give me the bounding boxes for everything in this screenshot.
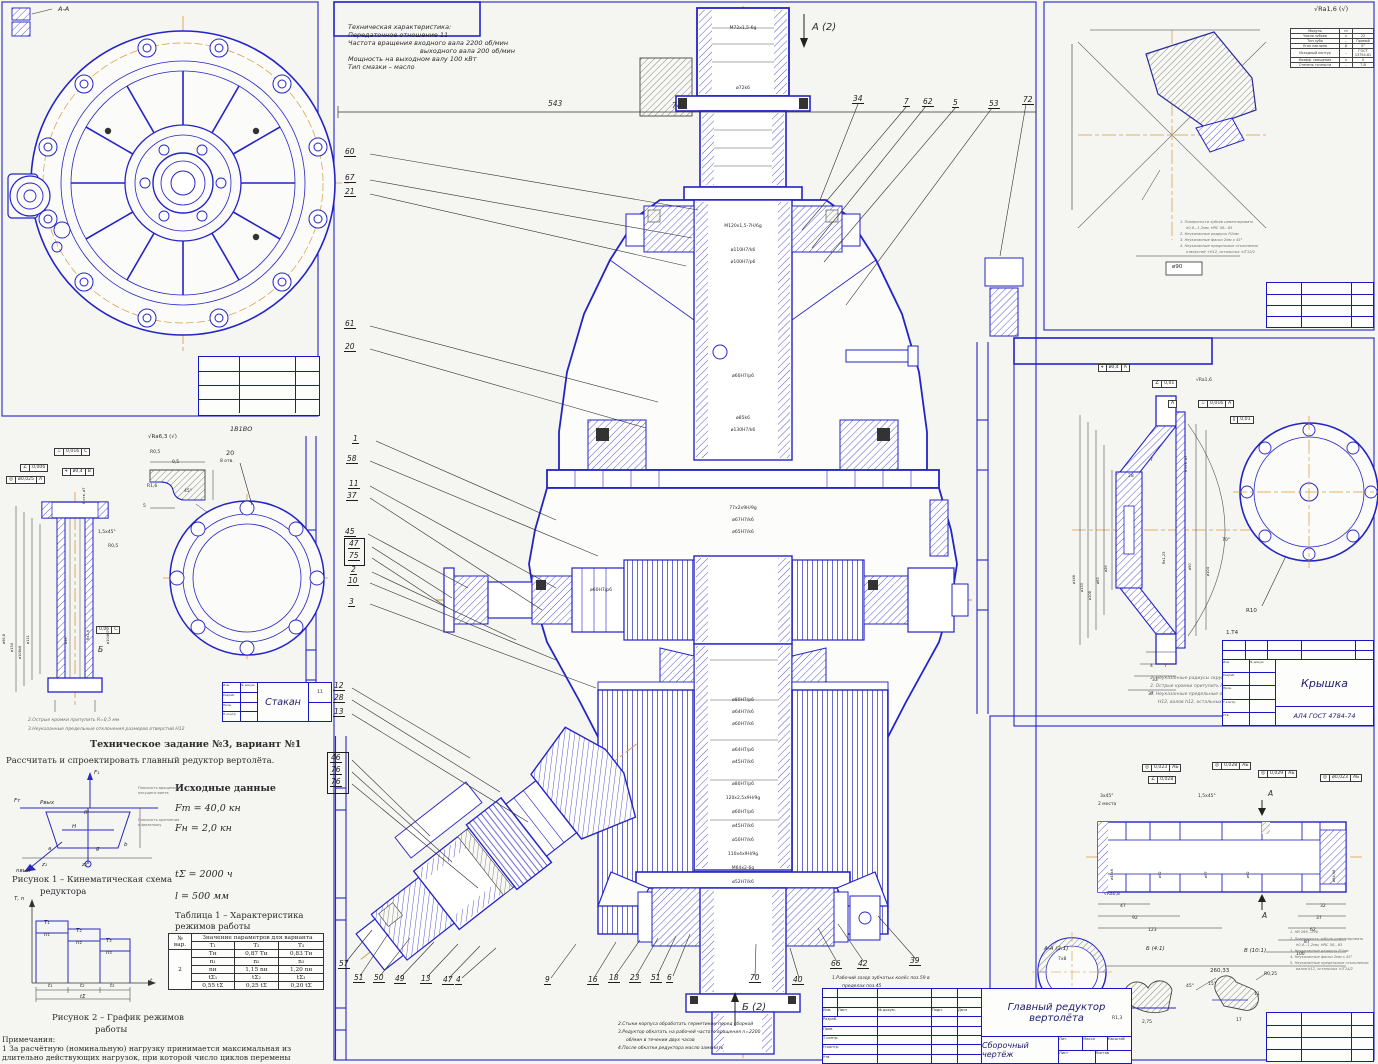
dim-label: 7 bbox=[1164, 664, 1167, 669]
dim-label: 28 bbox=[1128, 474, 1134, 479]
gdt-frame: ◎0,023АБ bbox=[1142, 764, 1181, 772]
callout-number: 61 bbox=[344, 320, 356, 329]
callout-number: 58 bbox=[346, 455, 358, 464]
section-label-bottom: Б (2) bbox=[742, 1002, 766, 1014]
dim-label: ø148 bbox=[1072, 575, 1076, 584]
assembly-note: 3.Редуктор обкатать на рабочей частоте в… bbox=[618, 1030, 761, 1035]
view-label: Б (4:1) bbox=[1146, 946, 1165, 952]
callout-number: 39 bbox=[909, 957, 921, 966]
dim-label: ø63 bbox=[1096, 577, 1100, 584]
gdt-frame: ∠0,01 bbox=[1152, 380, 1177, 388]
drawing-note: 2. Поверхность зубьев цементировать bbox=[1290, 937, 1363, 941]
dim-label: R10 bbox=[1246, 608, 1257, 614]
callout-number: 21 bbox=[344, 188, 356, 197]
shaft-title-block bbox=[1266, 1012, 1374, 1062]
callout-number: 47 bbox=[442, 976, 454, 985]
fit-label: ø65Н7/k6 bbox=[732, 530, 754, 535]
dim-label: ø104Н7 bbox=[106, 630, 110, 644]
fit-label: ø45Н7/k6 bbox=[732, 824, 754, 829]
drawing-note: 2.Острые кромки притупить R=0,5 мм bbox=[28, 718, 119, 723]
fig2-caption: Рисунок 2 – График режимов bbox=[52, 1014, 184, 1024]
dim-label: 7х8 bbox=[1058, 957, 1066, 962]
part-title: Стакан bbox=[258, 683, 308, 721]
gdt-frame: ◎ø0,025А bbox=[6, 476, 45, 484]
callout-number: 23 bbox=[629, 974, 641, 983]
drawing-note: 3.Неуказанные предельные отклонения разм… bbox=[28, 727, 184, 732]
table1-caption: режимов работы bbox=[175, 923, 250, 933]
part-title: Крышка bbox=[1276, 660, 1373, 706]
view-label: В (10:1) bbox=[1244, 948, 1266, 954]
dim-label: ø108 bbox=[1088, 591, 1092, 600]
gear-title-block bbox=[1266, 282, 1374, 328]
fig2-label: Т₂ bbox=[76, 928, 82, 934]
callout-number: 37 bbox=[346, 492, 358, 501]
callout-number: 9 bbox=[544, 976, 551, 985]
tb-col: Дата bbox=[957, 1008, 981, 1016]
section-mark: А bbox=[1262, 912, 1267, 921]
fit-label: ø45Н7/k6 bbox=[732, 760, 754, 765]
dim-label: 11 bbox=[1254, 992, 1260, 997]
fit-label: ø80Н7/р6 bbox=[732, 782, 754, 787]
fit-label: ø72k6 bbox=[736, 86, 750, 91]
assembly-top-view bbox=[8, 8, 352, 352]
dim-label: 37 bbox=[1316, 916, 1322, 921]
surface-finish-mark: √Ra0,8 bbox=[1104, 892, 1120, 897]
callout-number: 72 bbox=[1022, 96, 1034, 105]
callout-number: 51 bbox=[353, 974, 365, 983]
drawing-note: 4. Неуказанные фаски 2мм х 45° bbox=[1290, 955, 1352, 959]
callout-number: 10 bbox=[347, 577, 359, 586]
drawing-title: Главный редуктор вертолёта bbox=[982, 989, 1131, 1036]
callout-number: 47 bbox=[348, 540, 360, 549]
callout-number: 75 bbox=[348, 552, 360, 561]
assembly-note: 1.Рабочий зазор зубчатых колёс поз.59 в bbox=[832, 976, 930, 981]
fig1-label: Fт bbox=[14, 798, 20, 804]
fig1-annotation: Плоскость вращения bbox=[138, 786, 178, 790]
dim-label: 2,75 bbox=[1142, 1020, 1152, 1025]
section-label: А-А (2:1) bbox=[1044, 946, 1068, 952]
corner-view-label: А-А bbox=[58, 6, 69, 13]
dim-label: 17 bbox=[1236, 1018, 1242, 1023]
fit-label: М64х2-6g bbox=[732, 866, 754, 871]
fig2-label: t₃ bbox=[110, 983, 114, 989]
note-marker: 1.Т4 bbox=[1226, 630, 1238, 636]
main-assembly-section bbox=[315, 6, 1036, 1058]
tb-row: Разраб. bbox=[823, 1017, 877, 1025]
assembly-note: 2.Стыки корпуса обработать герметиком пе… bbox=[618, 1022, 753, 1027]
dim-label: 45° bbox=[1186, 984, 1194, 989]
fig1-annotation: Плоскость крепления bbox=[138, 818, 179, 822]
fig1-label: III bbox=[84, 810, 89, 816]
fit-label: ø60Н7/р6 bbox=[732, 810, 754, 815]
dim-label: 7 bbox=[1150, 458, 1153, 463]
dim-label: R1,6 bbox=[147, 484, 157, 489]
dim-label: 5 bbox=[143, 504, 146, 509]
dim-label: 260,33 bbox=[1210, 968, 1229, 974]
dim-label: 74 bbox=[672, 102, 682, 111]
task-param: Fн = 2,0 кн bbox=[175, 824, 232, 835]
duty-table: № вар. Значение параметров для варианта … bbox=[168, 933, 324, 990]
gdt-frame: ∥0,01 bbox=[1230, 416, 1254, 424]
fig2-label: Т, n bbox=[14, 896, 24, 902]
fit-label: ø85k6 bbox=[736, 416, 750, 421]
fit-label: ø130Н7/k6 bbox=[731, 428, 756, 433]
fig1-label: F₁ bbox=[94, 770, 99, 776]
callout-number: 76 bbox=[330, 766, 342, 775]
callout-number: 5 bbox=[952, 99, 959, 108]
fig1-label: b bbox=[124, 842, 128, 848]
doc-type: Сборочный чертёж bbox=[982, 1037, 1058, 1063]
sheet-number: 11 bbox=[309, 683, 331, 702]
cover-title-block: Изм.№ докум. Разраб. Пров. Т.контр. Утв.… bbox=[1222, 640, 1374, 726]
callout-number: 66 bbox=[830, 960, 842, 969]
note-line: длительно действующих нагрузок, при кото… bbox=[2, 1054, 290, 1063]
tb-row: Н.контр. bbox=[823, 1045, 877, 1053]
dim-label: 1,5х45° bbox=[1198, 794, 1216, 799]
fit-label: ø60Н7/р6 bbox=[732, 374, 754, 379]
holes-note: 8 отв. ø7 bbox=[1184, 456, 1188, 473]
fit-label: ø60Н7/р6 bbox=[590, 588, 612, 593]
dim-label: R0,5 bbox=[150, 450, 160, 455]
callout-number: 1 bbox=[352, 435, 359, 444]
dim-label: 8 отв. bbox=[220, 459, 234, 464]
dim-label: 20 bbox=[226, 450, 234, 457]
gdt-frame: ∠0,028 bbox=[1148, 776, 1176, 784]
fit-label: 120х2,5х9Н/9g bbox=[726, 796, 761, 801]
callout-number: 4 bbox=[455, 976, 462, 985]
callout-number: 40 bbox=[792, 976, 804, 985]
dim-label: 45° bbox=[184, 489, 192, 494]
dim-label: 15° bbox=[1208, 982, 1216, 987]
gdt-frame: ⌖ø0,4В bbox=[62, 468, 94, 476]
drawing-note: 4. Неуказанные предельные отклонения bbox=[1180, 244, 1258, 248]
fig2-label: Т₁ bbox=[44, 920, 50, 926]
dim-label: R0,5 bbox=[108, 544, 118, 549]
fig2-label: n₃ bbox=[106, 950, 112, 956]
dim-label: ø45k6 bbox=[1110, 869, 1114, 880]
fit-label: ø80Н7/р6 bbox=[732, 698, 754, 703]
section-mark: А bbox=[1268, 790, 1273, 799]
callout-number: 16 bbox=[587, 976, 599, 985]
dim-label: 47 bbox=[1120, 904, 1126, 909]
shaft-detail-view bbox=[1032, 800, 1362, 1013]
fit-label: ø64Н7/k6 bbox=[732, 710, 754, 715]
datum-frame: А bbox=[1168, 400, 1177, 408]
dim-label: R0,25 bbox=[1264, 972, 1277, 977]
fig2-label: n₂ bbox=[76, 940, 82, 946]
callout-number: 3 bbox=[348, 598, 355, 607]
dim-label: 123 bbox=[1148, 928, 1157, 933]
dim-label: ø62 bbox=[1246, 871, 1250, 878]
gdt-frame: ∠0,006 bbox=[20, 464, 48, 472]
surface-finish-mark: √Ra1,6 bbox=[1196, 378, 1212, 383]
fig2-label: Т₃ bbox=[106, 938, 112, 944]
dim-label: ø108k6 bbox=[18, 646, 22, 659]
assembly-note: об/мин в течении двух часов bbox=[626, 1038, 695, 1043]
task-data-heading: Исходные данные bbox=[175, 784, 276, 795]
tb-col: Лист bbox=[837, 1008, 877, 1016]
fit-label: ø52Н7/k6 bbox=[732, 880, 754, 885]
blueprint-canvas: А-А Техническая характеристика: Передато… bbox=[0, 0, 1378, 1064]
dim-label: ø52 bbox=[1158, 871, 1162, 878]
task-heading: Техническое задание №3, вариант №1 bbox=[90, 740, 301, 751]
callout-number: 67 bbox=[344, 174, 356, 183]
callout-number: 34 bbox=[852, 95, 864, 104]
fit-label: ø60Н7/k6 bbox=[732, 722, 754, 727]
fig2-label: n₁ bbox=[44, 932, 50, 938]
callout-number: 46 bbox=[330, 754, 342, 763]
stakan-title-block: Изм.№ докум. Разраб. Пров. Н.контр. Стак… bbox=[222, 682, 332, 722]
drawing-note: 3. Неуказанные радиусы R1мм bbox=[1290, 949, 1349, 953]
gdt-frame: ◎ø0,023АБ bbox=[1320, 774, 1362, 782]
surface-finish-mark: √Ra6,3 (√) bbox=[148, 434, 177, 440]
gdt-frame: ⊥0,016А bbox=[1198, 400, 1234, 408]
fig2-label: tΣ bbox=[80, 994, 86, 1000]
dim-label: Ra1,6 bbox=[86, 630, 90, 640]
fig1-label: z₁ bbox=[42, 862, 47, 868]
fig1-label: g bbox=[96, 846, 100, 852]
task-param: l = 500 мм bbox=[175, 892, 229, 903]
callout-number: 76 bbox=[330, 778, 342, 787]
dim-label: ø90 bbox=[1172, 264, 1182, 270]
fit-label: 110х4х9Н/9g bbox=[728, 852, 758, 857]
callout-number: 57 bbox=[338, 960, 350, 969]
tb-sheets: Листов bbox=[1095, 1051, 1132, 1064]
callout-number: 18 bbox=[608, 974, 620, 983]
fit-label: М120х1,5-7Н/6g bbox=[724, 224, 761, 229]
callout-number: 62 bbox=[922, 98, 934, 107]
dim-label: 2 места bbox=[1098, 802, 1116, 807]
dim-label: ø90 bbox=[1188, 563, 1192, 570]
dim-label: 4 bbox=[1150, 664, 1153, 669]
tb-sheet: Лист bbox=[1059, 1051, 1095, 1064]
view-label: 1В1ВО bbox=[230, 426, 252, 433]
fit-label: ø100Н7/р6 bbox=[731, 260, 756, 265]
fig2-label: t bbox=[150, 978, 152, 984]
drawing-note: 1. НВ 266...290 bbox=[1290, 930, 1318, 934]
drawing-note: 3. Неуказанные фаски 2мм х 45° bbox=[1180, 238, 1242, 242]
fig1-label: Pвых bbox=[40, 800, 54, 806]
callout-number: 42 bbox=[857, 960, 869, 969]
title-block-fragment bbox=[198, 356, 320, 416]
dim-label: R1,3 bbox=[1112, 1016, 1122, 1021]
task-param: Fт = 40,0 кн bbox=[175, 804, 241, 815]
callout-number: 28 bbox=[333, 694, 345, 703]
fig1-annotation: несущего винта bbox=[138, 791, 169, 795]
fit-label: ø67Н7/k6 bbox=[732, 518, 754, 523]
dim-label: 1,5х45° bbox=[98, 530, 116, 535]
fit-label: ø110Н7/k6 bbox=[731, 248, 756, 253]
dim-label: ø134 bbox=[10, 643, 14, 652]
tb-mass: Масса bbox=[1082, 1037, 1106, 1050]
dim-label: ø84,96 bbox=[1332, 870, 1336, 883]
drawing-note: 5. Неуказанные предельные отклонения: bbox=[1290, 961, 1369, 965]
fig2-label: t₂ bbox=[80, 983, 84, 989]
callout-number: 20 bbox=[344, 343, 356, 352]
holes-note: 8 отв. ø7 bbox=[82, 488, 86, 505]
callout-number: 49 bbox=[394, 975, 406, 984]
dim-label: Ra1,25 bbox=[1162, 552, 1166, 565]
tb-col: Изм. bbox=[823, 1008, 837, 1016]
line-art bbox=[0, 0, 1378, 1064]
callout-number: 60 bbox=[344, 148, 356, 157]
callout-number: 70 bbox=[749, 974, 761, 983]
fig1-label: H bbox=[72, 824, 76, 830]
tb-col: № докум. bbox=[877, 1008, 931, 1016]
table1-caption: Таблица 1 – Характеристика bbox=[175, 912, 304, 922]
gdt-frame: ⌖ø0,4А bbox=[1098, 364, 1130, 372]
dim-label: ø96,8 bbox=[2, 634, 6, 644]
gdt-frame: ◎0,028АБ bbox=[1212, 762, 1251, 770]
tb-row: Пров. bbox=[823, 1027, 877, 1035]
gdt-frame: ◎0,029АБ bbox=[1258, 770, 1297, 778]
task-param: tΣ = 2000 ч bbox=[175, 870, 233, 881]
dim-label: 3х45° bbox=[1100, 794, 1114, 799]
dim-label: ø104 bbox=[1206, 567, 1210, 576]
surface-finish-mark: √Ra1,6 (√) bbox=[1314, 6, 1348, 13]
task-body: Рассчитать и спроектировать главный реду… bbox=[6, 757, 274, 767]
dim-label: 32 bbox=[1320, 904, 1326, 909]
fig2-label: t₁ bbox=[48, 983, 52, 989]
tb-row: Утв. bbox=[823, 1055, 877, 1063]
dim-label: ø26 bbox=[1104, 565, 1108, 572]
main-title-block: Изм. Лист № докум. Подп. Дата Разраб. Пр… bbox=[822, 988, 1132, 1064]
tb-col: Подп. bbox=[931, 1008, 957, 1016]
fig1-caption: редуктора bbox=[40, 888, 86, 898]
callout-number: 13 bbox=[333, 708, 345, 717]
dim-label: ø133 bbox=[1080, 583, 1084, 592]
dim-label: 0,5 bbox=[172, 460, 179, 465]
section-label-top: А (2) bbox=[812, 22, 836, 34]
drawing-note: отверстий +Н12, остальных ±IT12/2 bbox=[1186, 250, 1255, 254]
fit-label: ø50Н7/k6 bbox=[732, 838, 754, 843]
assembly-note: 4.После обкатки редуктора масло заменить bbox=[618, 1046, 723, 1051]
drawing-note: h0,8...1,2мм, HRC 58...63 bbox=[1296, 943, 1342, 947]
material-spec: АЛ4 ГОСТ 4784-74 bbox=[1276, 706, 1373, 725]
tech-spec-line: Тип смазки – масло bbox=[348, 64, 415, 71]
callout-number: 45 bbox=[344, 528, 356, 537]
drawing-note: 2. Неуказанные радиусы R1мм bbox=[1180, 232, 1239, 236]
dim-label: 92 bbox=[1132, 916, 1138, 921]
callout-number: 53 bbox=[988, 100, 1000, 109]
tb-scale: Масштаб bbox=[1107, 1037, 1131, 1050]
cup-section-view bbox=[16, 492, 108, 712]
callout-number: 7 bbox=[903, 98, 910, 107]
drawing-note: 1. Поверхности зубьев цементировать bbox=[1180, 220, 1254, 224]
fig1-caption: Рисунок 1 – Кинематическая схема bbox=[12, 876, 172, 886]
tb-row: Т.контр. bbox=[823, 1036, 877, 1044]
drawing-note: h0,8...1,2мм, HRC 58...63 bbox=[1186, 226, 1232, 230]
gdt-frame: ⊥0,016С bbox=[54, 448, 90, 456]
callout-number: 2 bbox=[350, 566, 357, 575]
callout-number: 51 bbox=[650, 974, 662, 983]
fit-label: 77х2х9Н/9g bbox=[729, 506, 756, 511]
fig2-caption: работы bbox=[95, 1026, 127, 1036]
tb-lit: Лит. bbox=[1059, 1037, 1082, 1050]
gear-parameter-table: Модульm Число зубьевz22 Тип зуба–Прямой … bbox=[1290, 28, 1374, 68]
dim-label: ø98 bbox=[64, 637, 68, 644]
dim-label: 543 bbox=[548, 100, 562, 109]
callout-number: 12 bbox=[333, 682, 345, 691]
drawing-note: валов h12, остальных ±IT14/2 bbox=[1296, 967, 1353, 971]
fig1-label: nвых bbox=[16, 868, 30, 874]
fig1-label: z₂ bbox=[82, 862, 87, 868]
fit-label: ø64Н7/р6 bbox=[732, 748, 754, 753]
section-mark: Б bbox=[98, 646, 103, 655]
fig1-label: a bbox=[48, 846, 51, 852]
callout-number: 11 bbox=[348, 480, 360, 489]
callout-number: 13 bbox=[420, 975, 432, 984]
dim-label: ø57 bbox=[1204, 871, 1208, 878]
fig1-annotation: к фюзеляжу bbox=[138, 823, 161, 827]
corner-groove-detail bbox=[150, 462, 213, 516]
callout-number: 50 bbox=[373, 974, 385, 983]
fit-label: М72х1,5-6g bbox=[730, 26, 757, 31]
dim-label: ø111 bbox=[26, 635, 30, 644]
callout-number: 6 bbox=[666, 974, 673, 983]
dim-label: 70° bbox=[1222, 538, 1230, 543]
